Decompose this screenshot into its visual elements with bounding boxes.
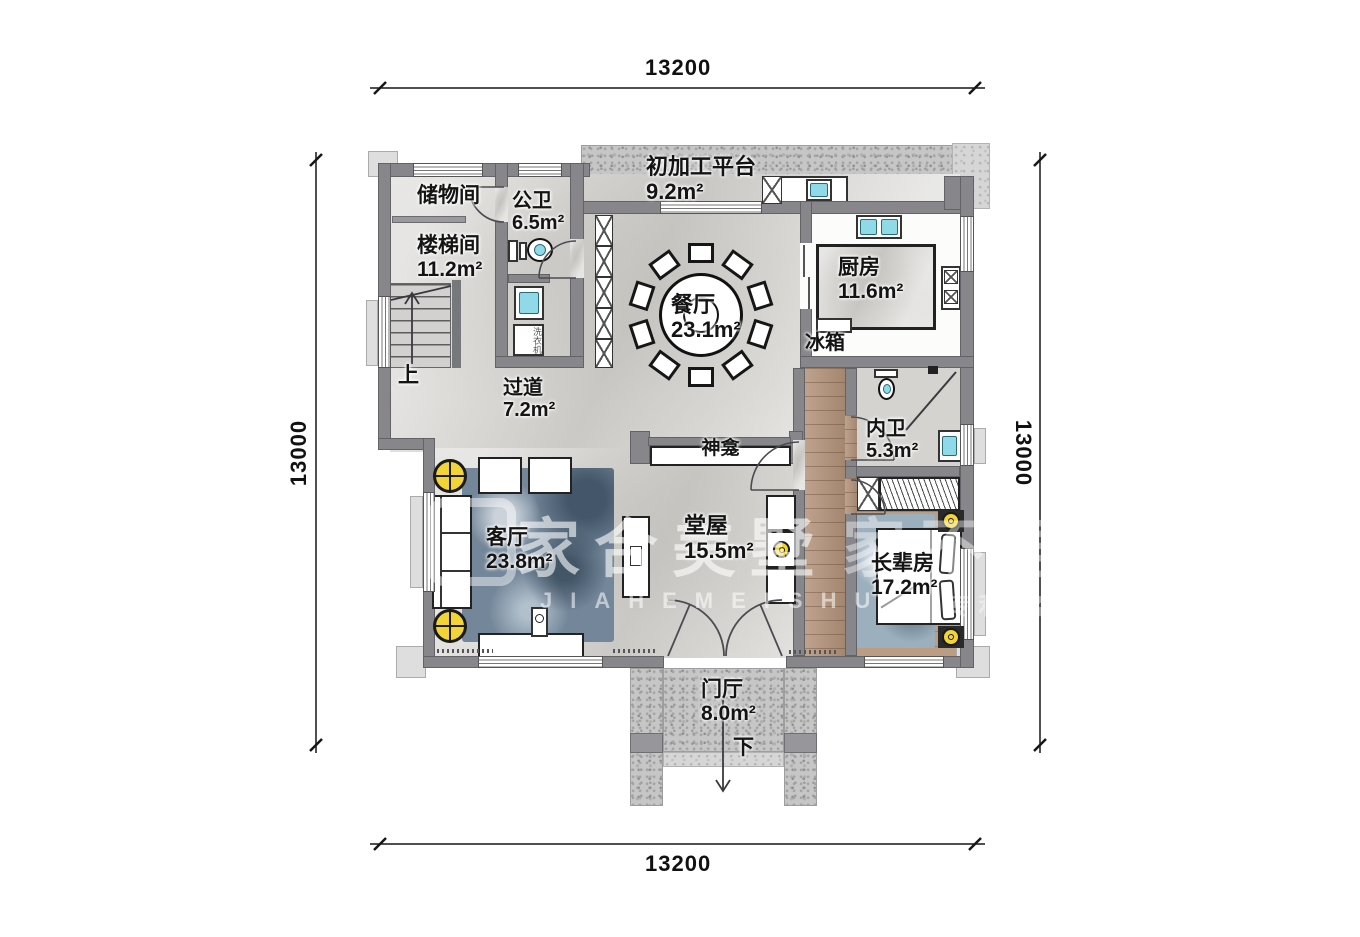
label-shrine: 神龛 [650, 438, 791, 459]
tv-icon-dot [535, 614, 544, 623]
wall-public-bath-bottom [495, 356, 584, 368]
sliding-door-leaf [808, 277, 810, 309]
room-name: 过道 [503, 377, 555, 399]
room-name: 门厅 [701, 678, 756, 702]
public-bath-door-gap [570, 239, 584, 278]
room-name: 堂屋 [684, 514, 754, 539]
fixture-name: 洗衣机 [532, 327, 542, 354]
threshold-strip [437, 649, 493, 653]
room-label-hall: 堂屋 15.5m² [684, 514, 754, 563]
sill-elder [974, 552, 986, 636]
room-name: 餐厅 [671, 293, 741, 318]
sofa-cushion-line [440, 570, 470, 572]
sofa-cushion-line [440, 532, 470, 534]
floor-plan: 家合美墅 家不再 JIAHEMEISHU 原 专利 盗 13200 13200 … [0, 0, 1360, 937]
small-sink [508, 240, 518, 262]
room-label-public-bath: 公卫 6.5m² [512, 190, 564, 235]
wardrobe-hanging [879, 477, 960, 511]
elder-door-gap [845, 478, 857, 514]
toilet-tank [519, 242, 527, 260]
prep-counter-basket [762, 176, 782, 204]
room-name: 长辈房 [871, 552, 938, 576]
ceiling-light-symbol [433, 609, 467, 643]
room-label-inner-bath: 内卫 5.3m² [866, 418, 918, 463]
label-fridge: 冰箱 [805, 332, 845, 354]
storage-door-gap [495, 187, 508, 222]
room-label-stairwell: 楼梯间 11.2m² [417, 234, 482, 281]
kitchen-sink-basin [881, 219, 898, 235]
toilet-tank [874, 369, 898, 378]
sofa-back-line [440, 497, 442, 607]
threshold-strip [789, 650, 839, 654]
wall-inner-bath-bottom [845, 466, 960, 477]
room-area: 23.1m² [671, 318, 741, 343]
hall-corridor-door-gap [793, 440, 805, 490]
room-name: 公卫 [512, 190, 564, 212]
wardrobe-section [857, 477, 879, 511]
sliding-door-leaf [803, 245, 805, 277]
room-name: 楼梯间 [417, 234, 482, 258]
room-name: 储物间 [417, 184, 480, 208]
room-area: 6.5m² [512, 212, 564, 234]
dining-chair [688, 243, 714, 263]
room-area: 5.3m² [866, 440, 918, 462]
room-name: 初加工平台 [646, 155, 756, 180]
fixture-name: 冰箱 [805, 332, 845, 354]
window-stairwell-left [378, 296, 391, 368]
nav-text: 下 [733, 736, 754, 760]
threshold-strip [613, 649, 655, 653]
wall-public-bath-divider [508, 274, 550, 283]
dim-top: 13200 [645, 55, 711, 81]
nav-text: 上 [398, 364, 419, 388]
sill-bottomleft-corner [396, 646, 426, 678]
window-public-bath-top [518, 163, 562, 177]
hall-chair [766, 568, 796, 604]
bath-sink-basin [942, 436, 957, 456]
prep-sink-basin [810, 183, 828, 197]
window-living-bottom [478, 656, 603, 668]
sofa [432, 495, 472, 609]
window-living-left [423, 492, 435, 592]
stair-rail [452, 280, 461, 368]
fridge [816, 318, 852, 333]
label-entry-down: 下 [733, 736, 754, 760]
corridor-wood-floor [805, 368, 845, 656]
dining-chair [688, 367, 714, 387]
room-area: 7.2m² [503, 399, 555, 421]
room-label-kitchen: 厨房 11.6m² [838, 256, 903, 303]
kitchen-door-gap [800, 243, 812, 309]
table-lamp-symbol [773, 541, 790, 558]
dim-right: 13000 [1010, 407, 1036, 499]
label-stairs-up: 上 [398, 364, 419, 388]
stove-burner [944, 290, 958, 304]
laundry-sink-basin [519, 292, 539, 314]
window-inner-bath-right [960, 424, 974, 466]
room-name: 厨房 [838, 256, 903, 280]
room-area: 17.2m² [871, 576, 938, 600]
room-label-foyer: 门厅 8.0m² [701, 678, 756, 725]
porch-step [663, 752, 784, 767]
dim-left: 13000 [286, 407, 312, 499]
lamp-symbol [942, 628, 960, 646]
window-elder-bottom [864, 656, 944, 668]
inner-bath-door-gap [845, 415, 857, 460]
stove-burner [944, 270, 958, 284]
shoe-cabinet-section [595, 215, 613, 246]
hall-console-detail [630, 546, 642, 566]
sill-stairwell [366, 300, 378, 366]
window-storage-top [413, 163, 483, 177]
hall-chair [766, 495, 796, 531]
room-area: 8.0m² [701, 702, 756, 726]
room-label-living: 客厅 23.8m² [486, 526, 553, 573]
shoe-cabinet-section [595, 308, 613, 339]
shower-head-icon [928, 366, 938, 374]
pillow [939, 580, 957, 621]
room-area: 15.5m² [684, 539, 754, 564]
shrine-stub-left [630, 431, 650, 464]
room-label-elder: 长辈房 17.2m² [871, 552, 938, 599]
shoe-cabinet-section [595, 339, 613, 368]
porch-pier-left [630, 733, 663, 753]
window-kitchen-right [960, 216, 974, 272]
armchair [528, 457, 572, 494]
shoe-cabinet-section [595, 277, 613, 308]
room-area: 23.8m² [486, 550, 553, 574]
kitchen-sink-basin [860, 219, 877, 235]
room-area: 11.2m² [417, 258, 482, 282]
room-label-corridor: 过道 7.2m² [503, 377, 555, 422]
ceiling-light-symbol [433, 459, 467, 493]
porch-pier-right [784, 733, 817, 753]
dim-bottom: 13200 [645, 851, 711, 877]
room-area: 11.6m² [838, 280, 903, 304]
room-label-dining: 餐厅 23.1m² [671, 293, 741, 342]
label-washer: 洗衣机 [516, 327, 542, 354]
storage-divider-shelf [392, 216, 466, 223]
toilet-water [883, 384, 891, 394]
armchair [478, 457, 522, 494]
shoe-cabinet-section [595, 246, 613, 277]
lamp-symbol [942, 512, 960, 530]
room-area: 9.2m² [646, 180, 756, 205]
stairs [390, 283, 451, 368]
wall-kitchen-bottom [800, 356, 974, 368]
sill-inner-bath [974, 428, 986, 464]
toilet-water [534, 244, 546, 256]
room-label-platform: 初加工平台 9.2m² [646, 155, 756, 204]
room-name: 内卫 [866, 418, 918, 440]
room-name: 客厅 [486, 526, 553, 550]
room-label-storage: 储物间 [417, 184, 480, 208]
fixture-name: 神龛 [701, 438, 739, 459]
pillow [939, 534, 957, 575]
sill-living [410, 496, 423, 588]
